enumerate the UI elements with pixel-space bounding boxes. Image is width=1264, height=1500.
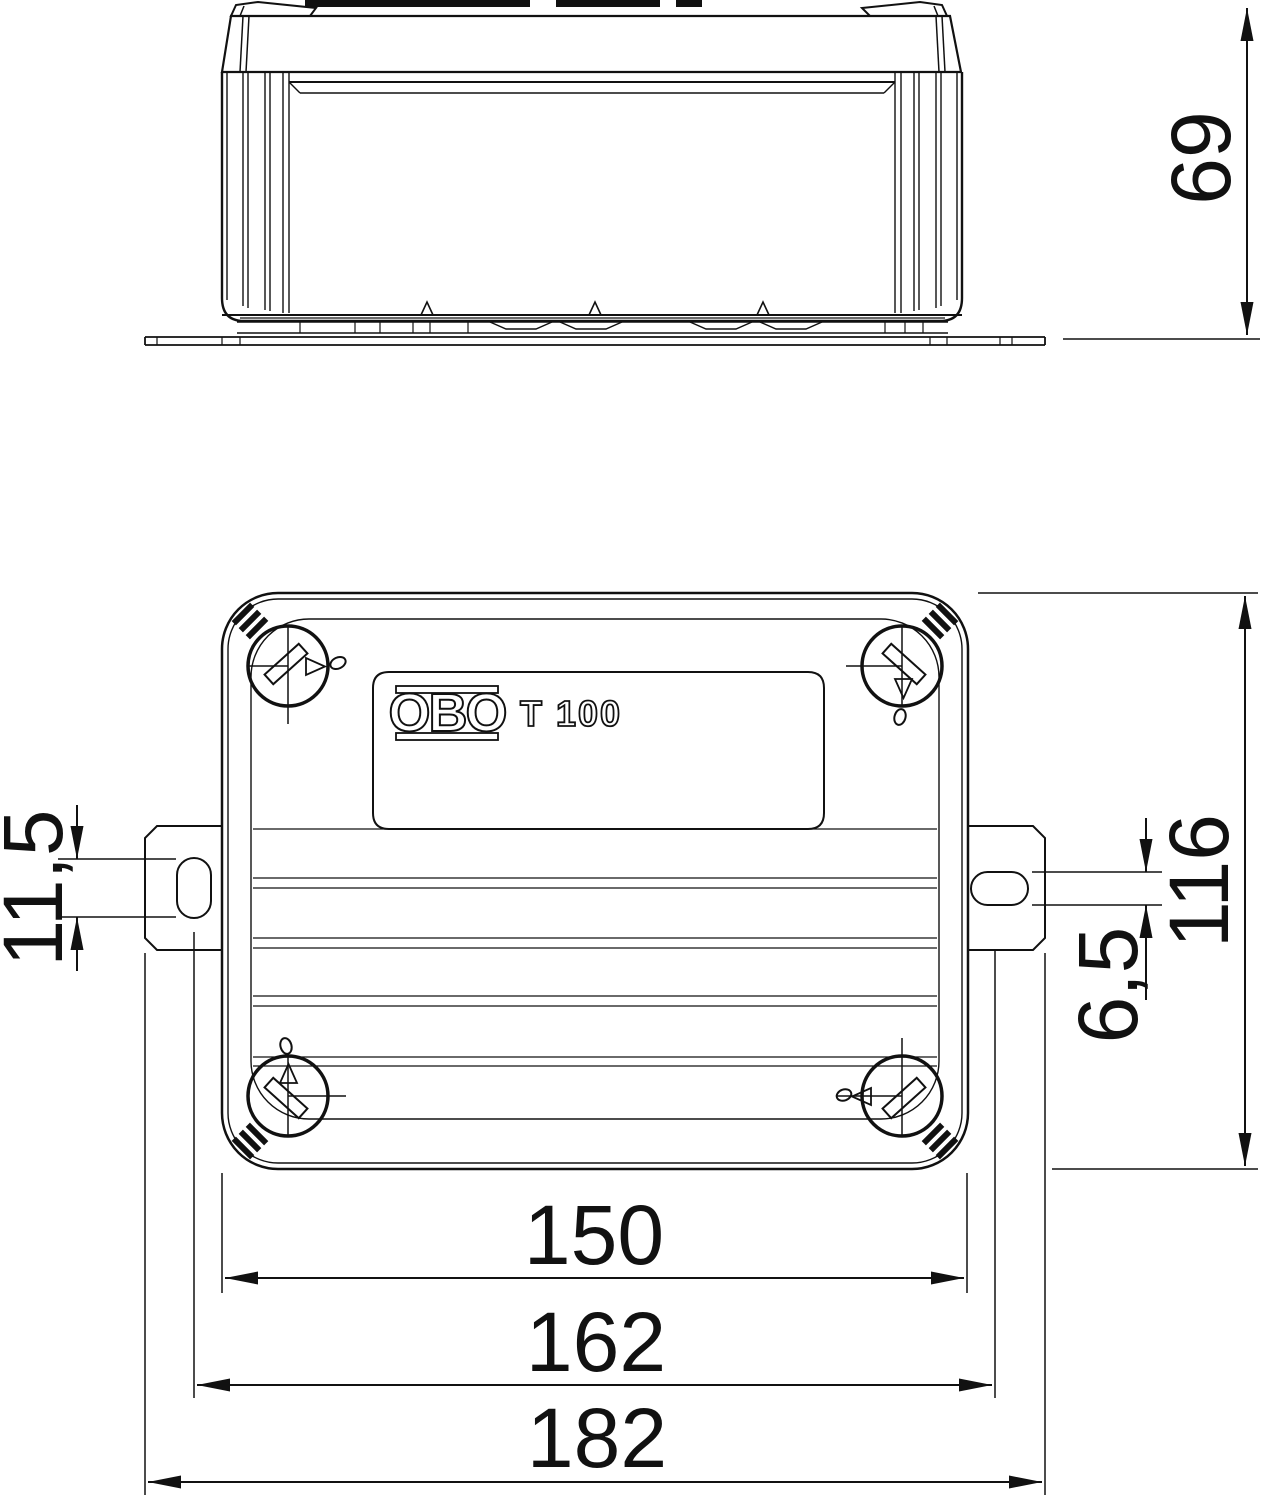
mounting-flange-left — [145, 826, 222, 950]
model-label: T 100 — [520, 693, 622, 734]
lid-corner-ear-right — [862, 2, 947, 16]
zero-marker-icon — [279, 1037, 294, 1055]
dim-label-150: 150 — [524, 1188, 664, 1282]
mounting-flange-right — [968, 826, 1045, 950]
dim-label-182: 182 — [527, 1391, 667, 1485]
dim-label-162: 162 — [526, 1295, 666, 1389]
lid-top-band — [222, 16, 961, 72]
alignment-pip — [421, 302, 433, 315]
latch — [490, 322, 552, 329]
dimension-162: 162 — [194, 932, 995, 1398]
lid-ribs — [253, 829, 937, 1066]
side-view: 69 — [145, 0, 1260, 345]
dim-label-11-5: 11,5 — [0, 809, 80, 966]
dimension-116: 116 — [978, 593, 1258, 1169]
screw-slot-icon — [265, 644, 308, 684]
dim-label-69: 69 — [1154, 111, 1248, 204]
plan-view: OBO T 100 — [0, 593, 1258, 1495]
corner-hatching — [234, 605, 956, 1157]
base-plate — [145, 337, 1045, 345]
open-direction-icon — [306, 658, 325, 675]
latch — [690, 322, 752, 329]
drawing-canvas: 69 — [0, 0, 1264, 1500]
lid-skirt — [222, 72, 962, 321]
corner-screw-top-right — [846, 626, 942, 726]
dim-label-116: 116 — [1152, 814, 1246, 948]
open-direction-icon — [895, 679, 912, 698]
latch — [760, 322, 822, 329]
zero-marker-icon — [835, 1087, 853, 1102]
alignment-pip — [757, 302, 769, 315]
latch — [560, 322, 622, 329]
lid-corner-ear-left — [231, 2, 316, 16]
dimension-11-5: 11,5 — [0, 805, 176, 971]
dimension-69: 69 — [1063, 8, 1260, 339]
screw-slot-icon — [883, 1078, 926, 1118]
mounting-slot-right — [971, 872, 1028, 905]
corner-screw-bottom-left — [248, 1037, 346, 1136]
obo-logo: OBO — [388, 683, 505, 743]
mounting-slot-left — [177, 858, 211, 918]
label-panel: OBO T 100 — [373, 672, 824, 829]
dimension-150: 150 — [222, 1173, 967, 1293]
dim-label-6-5: 6,5 — [1061, 927, 1155, 1044]
alignment-pip — [589, 302, 601, 315]
technical-drawing-junction-box: 69 — [0, 0, 1264, 1500]
box-outline — [222, 593, 968, 1169]
corner-screw-bottom-right — [835, 1038, 942, 1136]
zero-marker-icon — [893, 708, 908, 726]
cropped-top-edge — [305, 0, 530, 7]
zero-marker-icon — [328, 655, 347, 672]
dimension-6-5: 6,5 — [1032, 818, 1162, 1043]
